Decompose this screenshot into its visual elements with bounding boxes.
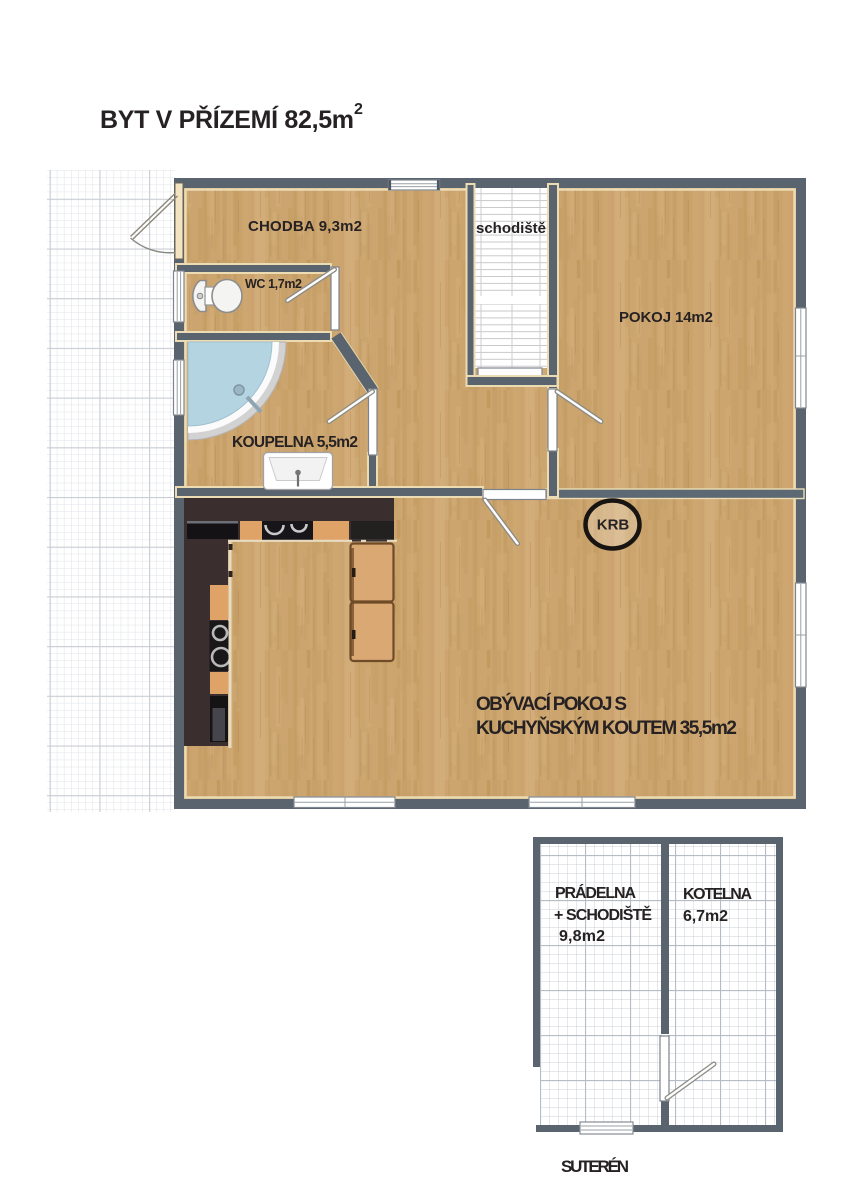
svg-text:6,7m2: 6,7m2: [683, 908, 728, 925]
svg-text:2: 2: [354, 101, 363, 118]
svg-text:KRB: KRB: [597, 517, 630, 534]
svg-text:schodiště: schodiště: [476, 220, 546, 237]
svg-text:CHODBA 9,3m2: CHODBA 9,3m2: [248, 218, 362, 235]
svg-text:WC 1,7m2: WC 1,7m2: [245, 277, 302, 291]
svg-text:OBÝVACÍ POKOJ S: OBÝVACÍ POKOJ S: [476, 693, 627, 715]
svg-text:BYT V PŘÍZEMÍ 82,5m: BYT V PŘÍZEMÍ 82,5m: [100, 104, 354, 134]
svg-text:KOUPELNA 5,5m2: KOUPELNA 5,5m2: [232, 434, 358, 451]
svg-text:POKOJ 14m2: POKOJ 14m2: [619, 309, 713, 326]
svg-text:KOTELNA: KOTELNA: [683, 886, 752, 903]
svg-text:+ SCHODIŠTĚ: + SCHODIŠTĚ: [554, 905, 652, 924]
svg-text:9,8m2: 9,8m2: [559, 928, 605, 945]
svg-text:PRÁDELNA: PRÁDELNA: [555, 883, 636, 902]
svg-text:SUTERÉN: SUTERÉN: [561, 1157, 629, 1176]
svg-text:KUCHYŇSKÝM KOUTEM 35,5m2: KUCHYŇSKÝM KOUTEM 35,5m2: [476, 717, 737, 739]
